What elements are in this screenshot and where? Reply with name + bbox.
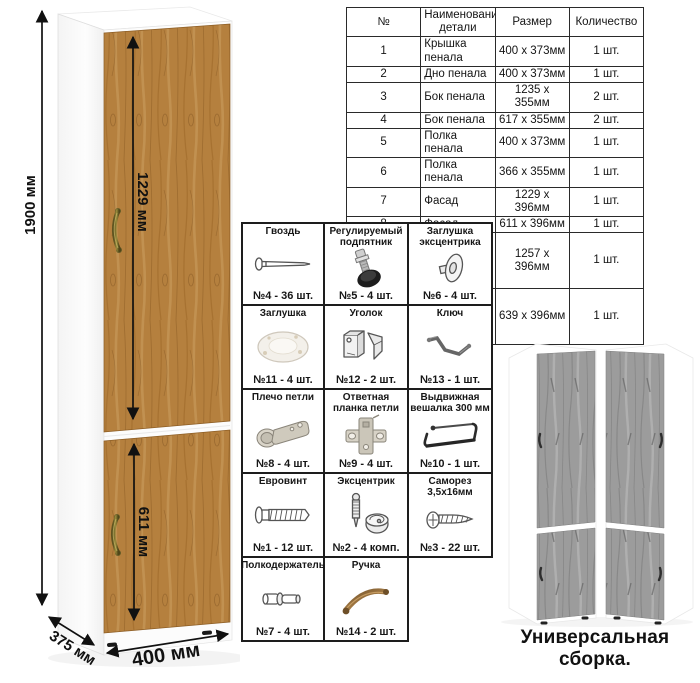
upper-door (104, 24, 230, 432)
duo-left-upper-door (537, 351, 595, 528)
table-cell: Полка пенала (421, 128, 495, 157)
hardware-item-qty: №12 - 2 шт. (336, 374, 396, 387)
table-cell: 4 (347, 112, 421, 128)
cabinet-illustration: 1900 мм 1229 мм 611 мм 375 мм 400 мм (0, 0, 240, 683)
table-cell: 2 шт. (569, 112, 643, 128)
col-header-number: № (347, 8, 421, 37)
table-cell: Крышка пенала (421, 37, 495, 66)
table-row: 5Полка пенала400 х 373мм1 шт. (347, 128, 644, 157)
hinge-plate-icon (340, 414, 392, 458)
hardware-item: Евровинт№1 - 12 шт. (241, 474, 325, 558)
universal-assembly-caption: Универсальная сборка. (488, 627, 700, 671)
cap-icon (254, 319, 312, 374)
table-cell: 1235 х 355мм (495, 83, 569, 112)
table-cell: Полка пенала (421, 158, 495, 187)
hardware-item-qty: №10 - 1 шт. (420, 458, 480, 471)
table-cell: 1 шт. (569, 158, 643, 187)
hardware-item-qty: №1 - 12 шт. (253, 542, 313, 555)
table-cell: 1257 х 396мм (495, 233, 569, 289)
table-cell: 1 шт. (569, 217, 643, 233)
table-cell: 611 х 396мм (495, 217, 569, 233)
hardware-item-name: Уголок (349, 308, 382, 319)
hardware-item-qty: №6 - 4 шт. (423, 290, 477, 303)
hardware-item-qty: №13 - 1 шт. (420, 374, 480, 387)
hardware-item: Выдвижная вешалка 300 мм№10 - 1 шт. (409, 390, 493, 474)
hardware-item: Заглушка№11 - 4 шт. (241, 306, 325, 390)
table-cell: 400 х 373мм (495, 128, 569, 157)
cam-cover-icon (430, 248, 470, 290)
lower-door-label: 611 мм (135, 507, 152, 558)
table-cell: 1 (347, 37, 421, 66)
hardware-item: Саморез 3,5х16мм№3 - 22 шт. (409, 474, 493, 558)
table-row: 6Полка пенала366 х 355мм1 шт. (347, 158, 644, 187)
hinge-arm-icon (254, 403, 312, 458)
hardware-item-name: Саморез 3,5х16мм (410, 476, 490, 498)
table-row: 7Фасад1229 х 396мм1 шт. (347, 187, 644, 216)
assembly-sheet: 1900 мм 1229 мм 611 мм 375 мм 400 мм № Н… (0, 0, 700, 683)
table-cell: 400 х 373мм (495, 66, 569, 82)
hex-key-icon (422, 319, 478, 374)
hardware-item-name: Заглушка эксцентрика (410, 226, 490, 248)
hardware-item: Ответная планка петли№9 - 4 шт. (325, 390, 409, 474)
hardware-item-qty: №14 - 2 шт. (336, 626, 396, 639)
hardware-item: Уголок№12 - 2 шт. (325, 306, 409, 390)
duo-left-lower-door (537, 528, 595, 620)
hardware-item: Гвоздь№4 - 36 шт. (241, 222, 325, 306)
corner-bracket-icon (338, 319, 394, 374)
col-header-part-name: Наименование детали (421, 8, 495, 37)
table-cell: Бок пенала (421, 112, 495, 128)
hardware-item-name: Эксцентрик (337, 476, 394, 487)
table-cell: 1 шт. (569, 37, 643, 66)
hardware-item-name: Гвоздь (266, 226, 301, 237)
table-cell: Фасад (421, 187, 495, 216)
table-cell: 2 (347, 66, 421, 82)
hardware-item-name: Регулируемый подпятник (326, 226, 406, 248)
hardware-item: Ручка№14 - 2 шт. (325, 558, 409, 642)
table-cell: 1229 х 396мм (495, 187, 569, 216)
hardware-item-name: Евровинт (259, 476, 307, 487)
hardware-item-name: Ключ (437, 308, 463, 319)
hardware-item: Регулируемый подпятник№5 - 4 шт. (325, 222, 409, 306)
table-cell: 366 х 355мм (495, 158, 569, 187)
table-cell: 639 х 396мм (495, 289, 569, 345)
cabinet-body (58, 7, 232, 655)
hardware-item-name: Выдвижная вешалка 300 мм (410, 392, 490, 414)
hardware-item-qty: №9 - 4 шт. (339, 458, 393, 471)
table-cell: 5 (347, 128, 421, 157)
hardware-item: Заглушка эксцентрика№6 - 4 шт. (409, 222, 493, 306)
table-header-row: № Наименование детали Размер Количество (347, 8, 644, 37)
table-cell: 400 х 373мм (495, 37, 569, 66)
cam-lock-icon (339, 487, 393, 542)
table-cell: Бок пенала (421, 83, 495, 112)
hardware-item-qty: №8 - 4 шт. (256, 458, 310, 471)
duo-right-cabinet (606, 344, 693, 624)
hardware-item-name: Ручка (352, 560, 381, 571)
adjustable-foot-icon (344, 248, 388, 290)
self-tapping-screw-icon (424, 498, 476, 542)
hardware-item-name: Заглушка (260, 308, 306, 319)
height-label: 1900 мм (22, 175, 39, 235)
table-cell: 6 (347, 158, 421, 187)
table-cell: 1 шт. (569, 187, 643, 216)
hardware-item: Эксцентрик№2 - 4 комп. (325, 474, 409, 558)
table-cell: Дно пенала (421, 66, 495, 82)
table-row: 2Дно пенала400 х 373мм1 шт. (347, 66, 644, 82)
hardware-item: Ключ№13 - 1 шт. (409, 306, 493, 390)
table-cell: 1 шт. (569, 66, 643, 82)
lower-door (104, 430, 230, 633)
hardware-item-qty: №5 - 4 шт. (339, 290, 393, 303)
table-cell: 1 шт. (569, 233, 643, 289)
nail-icon (252, 237, 314, 290)
hardware-item-qty: №4 - 36 шт. (253, 290, 313, 303)
euro-screw-icon (252, 487, 314, 542)
hardware-item-qty: №7 - 4 шт. (256, 626, 310, 639)
pullout-hanger-icon (419, 414, 481, 458)
table-row: 4Бок пенала617 х 355мм2 шт. (347, 112, 644, 128)
table-cell: 617 х 355мм (495, 112, 569, 128)
table-row: 1Крышка пенала400 х 373мм1 шт. (347, 37, 644, 66)
duo-right-lower-door (606, 528, 664, 620)
hardware-item-qty: №11 - 4 шт. (253, 374, 313, 387)
hardware-item: Полкодержатель№7 - 4 шт. (241, 558, 325, 642)
duo-left-cabinet (509, 344, 596, 624)
universal-assembly-illustration (495, 338, 700, 628)
shelf-pin-icon (259, 571, 307, 626)
cabinet-left-side (58, 14, 104, 655)
duo-right-upper-door (606, 351, 664, 528)
hardware-item-name: Ответная планка петли (326, 392, 406, 414)
hardware-grid: Гвоздь№4 - 36 шт.Регулируемый подпятник№… (241, 222, 493, 642)
table-cell: 3 (347, 83, 421, 112)
table-cell: 7 (347, 187, 421, 216)
col-header-quantity: Количество (569, 8, 643, 37)
hardware-item-qty: №2 - 4 комп. (332, 542, 399, 555)
table-cell: 1 шт. (569, 128, 643, 157)
handle-icon (336, 571, 396, 626)
hardware-item: Плечо петли№8 - 4 шт. (241, 390, 325, 474)
hardware-item-name: Плечо петли (252, 392, 314, 403)
table-cell: 1 шт. (569, 289, 643, 345)
hardware-item-qty: №3 - 22 шт. (420, 542, 480, 555)
upper-door-label: 1229 мм (134, 172, 151, 232)
table-cell: 2 шт. (569, 83, 643, 112)
table-row: 3Бок пенала1235 х 355мм2 шт. (347, 83, 644, 112)
col-header-size: Размер (495, 8, 569, 37)
hardware-item-name: Полкодержатель (241, 560, 325, 571)
